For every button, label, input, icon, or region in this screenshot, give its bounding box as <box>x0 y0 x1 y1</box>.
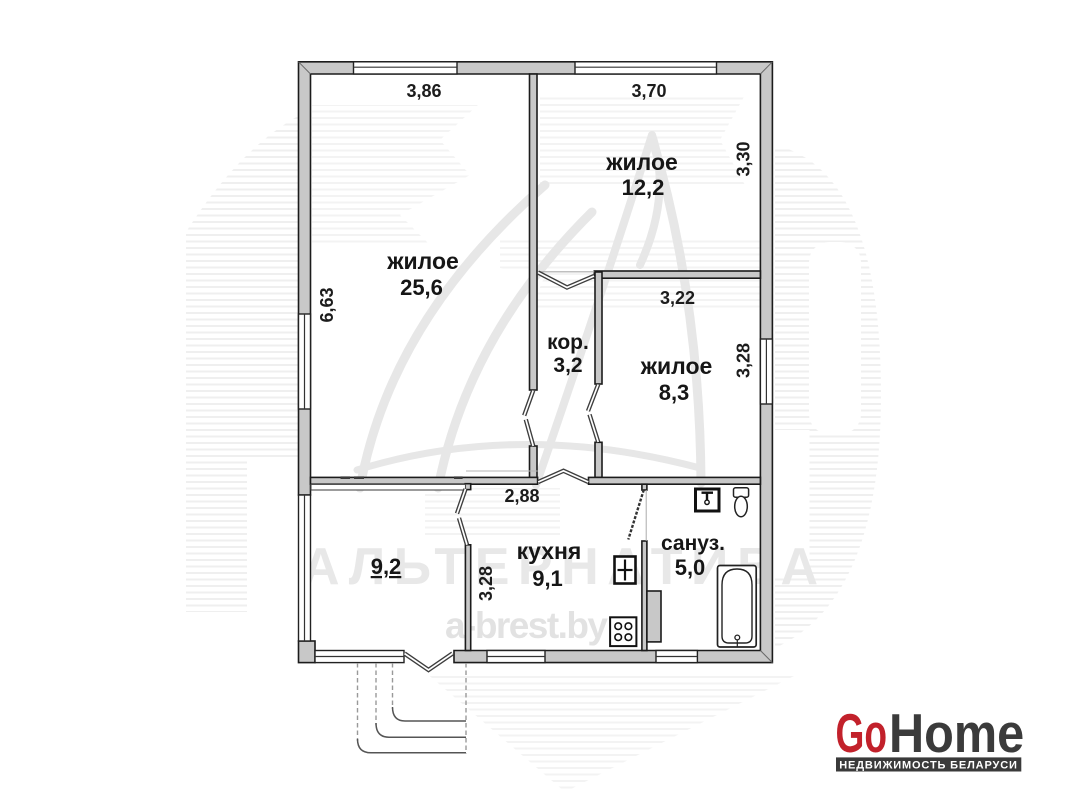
svg-text:8,3: 8,3 <box>659 380 690 405</box>
svg-text:кухня: кухня <box>517 538 582 564</box>
svg-text:3,70: 3,70 <box>631 81 666 101</box>
svg-text:Home: Home <box>889 703 1024 764</box>
svg-text:25,6: 25,6 <box>400 275 443 300</box>
svg-text:3,2: 3,2 <box>553 354 582 377</box>
svg-text:5,0: 5,0 <box>675 555 706 580</box>
svg-text:12,2: 12,2 <box>622 175 665 200</box>
svg-text:3,28: 3,28 <box>476 566 496 601</box>
svg-text:жилое: жилое <box>386 248 459 274</box>
svg-text:3,28: 3,28 <box>734 343 754 378</box>
svg-text:Go: Go <box>836 703 888 764</box>
svg-text:кор.: кор. <box>547 331 589 354</box>
svg-text:жилое: жилое <box>640 353 713 379</box>
svg-text:сануз.: сануз. <box>661 532 725 555</box>
svg-text:жилое: жилое <box>605 149 678 175</box>
svg-text:2,88: 2,88 <box>504 486 539 506</box>
svg-text:3,30: 3,30 <box>734 141 754 176</box>
svg-text:9,1: 9,1 <box>532 566 563 591</box>
svg-text:3,86: 3,86 <box>406 81 441 101</box>
svg-text:3,22: 3,22 <box>660 288 695 308</box>
svg-text:6,63: 6,63 <box>317 287 337 322</box>
svg-text:НЕДВИЖИМОСТЬ БЕЛАРУСИ: НЕДВИЖИМОСТЬ БЕЛАРУСИ <box>839 759 1018 771</box>
svg-text:9,2: 9,2 <box>371 554 402 579</box>
